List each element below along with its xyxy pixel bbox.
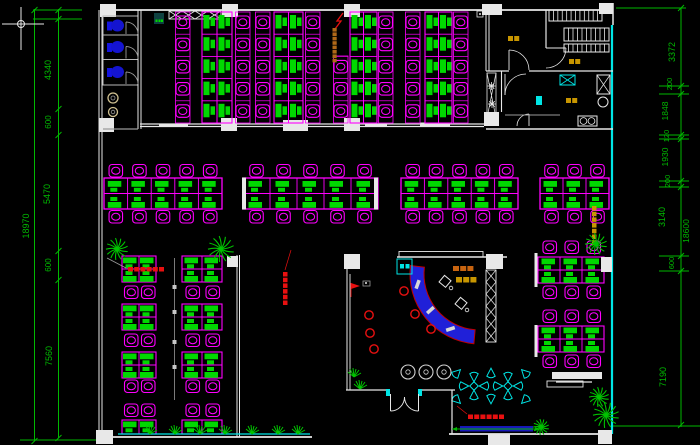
svg-text:3372: 3372: [667, 42, 677, 62]
svg-text:600: 600: [667, 257, 676, 270]
svg-text:600: 600: [44, 115, 53, 129]
svg-text:18970: 18970: [21, 213, 31, 238]
svg-text:120: 120: [662, 130, 671, 143]
svg-text:600: 600: [44, 258, 53, 272]
svg-text:200: 200: [663, 175, 672, 188]
svg-text:7190: 7190: [658, 367, 668, 387]
svg-text:5470: 5470: [42, 184, 52, 204]
svg-text:200: 200: [665, 78, 674, 91]
svg-text:7560: 7560: [44, 346, 54, 366]
svg-text:18600: 18600: [681, 219, 691, 243]
svg-text:3140: 3140: [657, 207, 667, 227]
svg-text:1848: 1848: [660, 101, 670, 120]
svg-text:1930: 1930: [660, 147, 670, 166]
svg-text:4340: 4340: [43, 60, 53, 80]
